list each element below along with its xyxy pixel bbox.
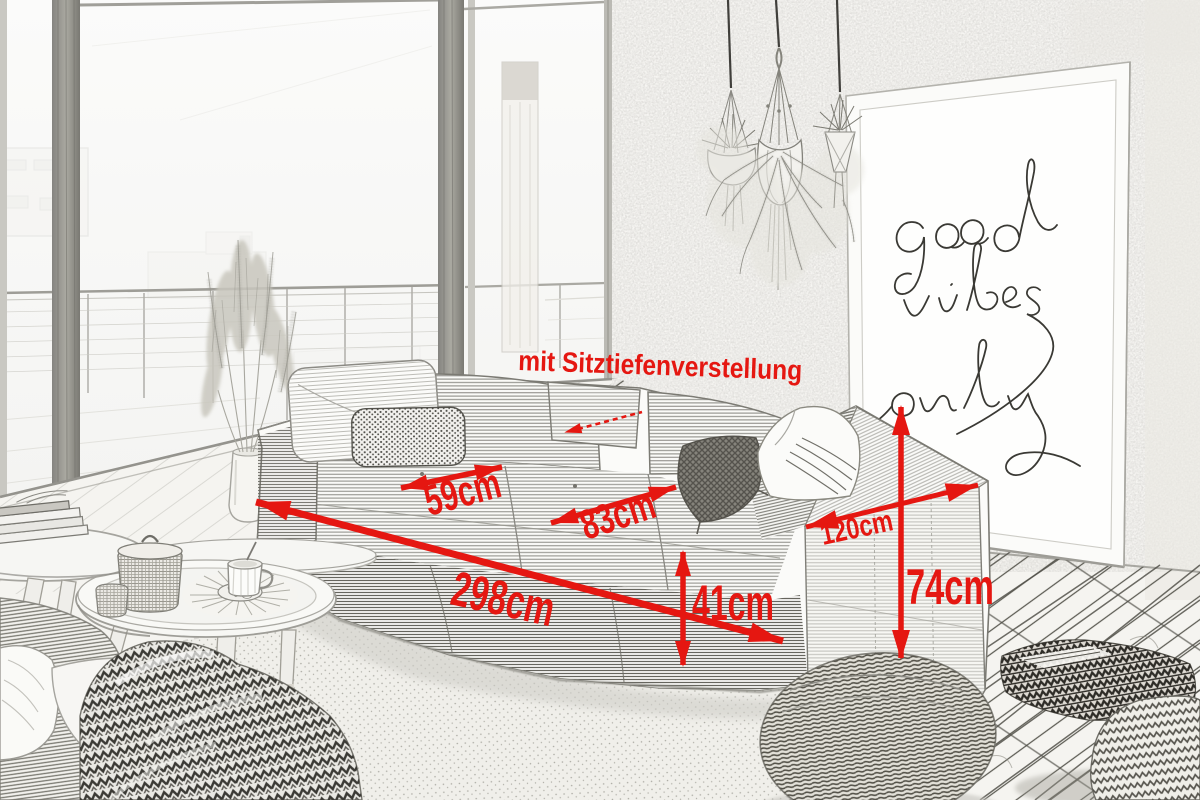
svg-text:41cm: 41cm	[692, 575, 774, 631]
svg-text:74cm: 74cm	[906, 559, 994, 615]
